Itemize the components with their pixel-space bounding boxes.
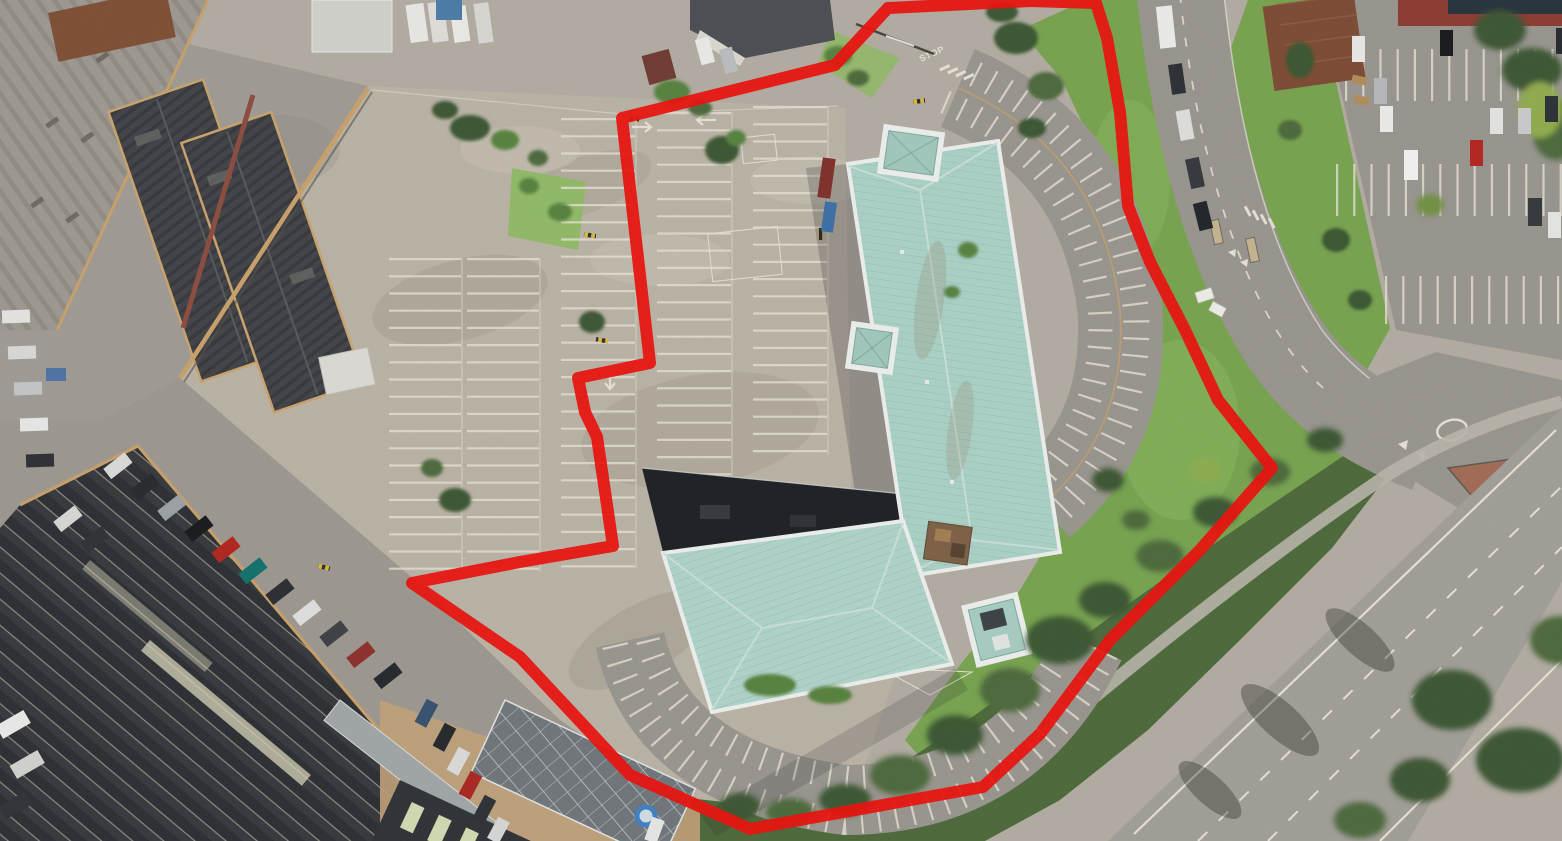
aerial-site-screenshot: STOP: [0, 0, 1562, 841]
photo-grain-overlay: [0, 0, 1562, 841]
aerial-photo: STOP: [0, 0, 1562, 841]
